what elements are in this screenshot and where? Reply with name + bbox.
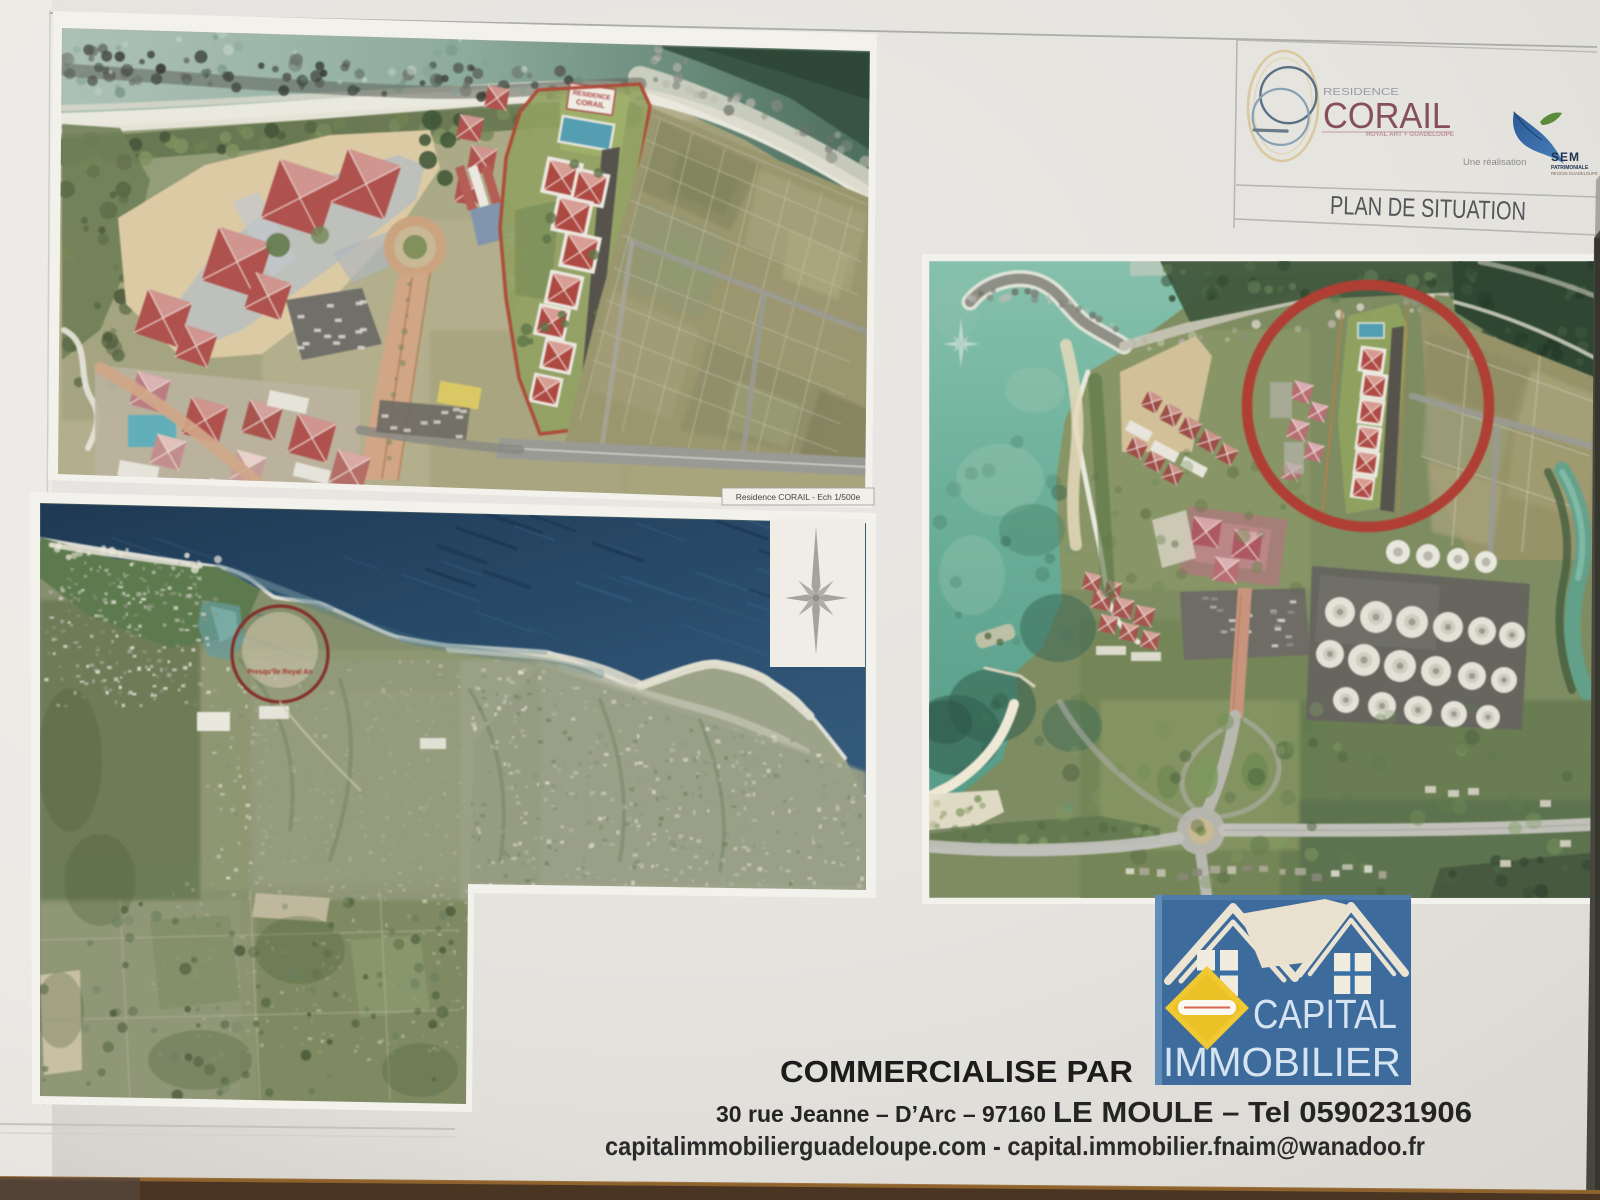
svg-text:Une réalisation: Une réalisation (1463, 157, 1526, 168)
svg-text:CORAIL: CORAIL (1323, 95, 1451, 136)
svg-text:capitalimmobilierguadeloupe.co: capitalimmobilierguadeloupe.com - capita… (605, 1131, 1425, 1161)
svg-text:COMMERCIALISE PAR: COMMERCIALISE PAR (780, 1054, 1133, 1089)
svg-text:30 rue Jeanne – D’Arc – 97160: 30 rue Jeanne – D’Arc – 97160 (716, 1101, 1046, 1127)
svg-text:REGION GUADELOUPE: REGION GUADELOUPE (1551, 171, 1598, 176)
svg-text:PLAN DE SITUATION: PLAN DE SITUATION (1330, 190, 1527, 226)
svg-text:Residence CORAIL - Ech 1/500e: Residence CORAIL - Ech 1/500e (736, 492, 861, 502)
svg-text:Presqu'île Royal An: Presqu'île Royal An (247, 669, 312, 676)
svg-text:IMMOBILIER: IMMOBILIER (1163, 1039, 1401, 1085)
svg-text:ROYAL ART + GUADELOUPE: ROYAL ART + GUADELOUPE (1366, 132, 1454, 138)
svg-text:LE MOULE – Tel 0590231906: LE MOULE – Tel 0590231906 (1053, 1097, 1472, 1129)
svg-text:CAPITAL: CAPITAL (1253, 991, 1397, 1037)
svg-text:SEM: SEM (1551, 150, 1580, 164)
